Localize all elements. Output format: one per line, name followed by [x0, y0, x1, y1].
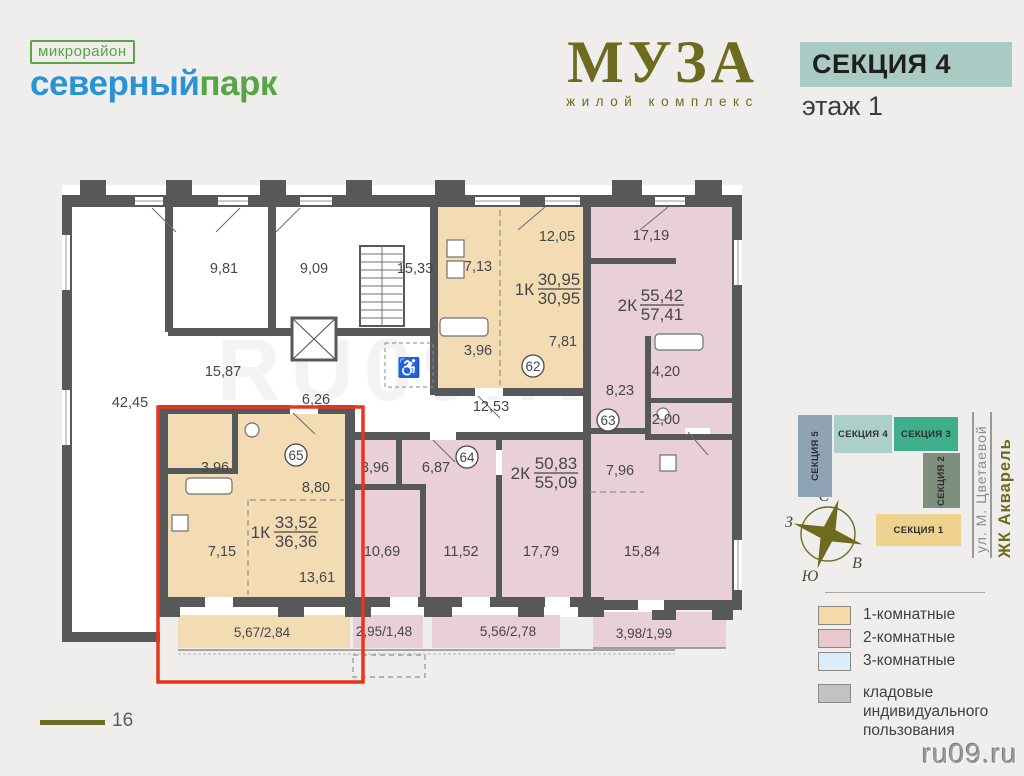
stairs [360, 246, 404, 326]
apartment-area-total: 50,83 [535, 454, 578, 473]
room-area-label: 12,05 [539, 229, 575, 245]
apartment-area-full: 55,09 [535, 473, 578, 492]
balcony-area-label: 3,98/1,99 [616, 626, 672, 641]
room-area-label: 7,96 [606, 463, 634, 479]
room-area-label: 15,33 [397, 261, 433, 277]
legend-item-storage: кладовые индивидуального пользования [818, 684, 1023, 740]
legend-label: 3-комнатные [863, 651, 1023, 670]
compass-east: В [852, 555, 862, 572]
legend-swatch-storage [818, 684, 851, 703]
legend-swatch-1k [818, 606, 851, 625]
apartment-area-total: 33,52 [275, 513, 318, 532]
room-area-label: 7,13 [464, 259, 492, 275]
legend-item-3k: 3-комнатные [818, 652, 1023, 671]
compass-south: Ю [801, 568, 819, 585]
bathtub-icon [186, 478, 232, 494]
apartment-63-area [588, 205, 733, 602]
apartment-type-label: 1К [515, 280, 534, 299]
minimap-section-3: СЕКЦИЯ 3 [894, 417, 958, 451]
room-area-label: 3,96 [361, 460, 389, 476]
apartment-area-full: 36,36 [275, 532, 318, 551]
apartment-number: 62 [525, 359, 540, 374]
street-name: ул. М. Цветаевой [973, 418, 989, 553]
bathtub-icon [440, 318, 488, 336]
legend-item-2k: 2-комнатные [818, 629, 1023, 648]
minimap-section-label: СЕКЦИЯ 4 [838, 429, 888, 440]
minimap-section-label: СЕКЦИЯ 3 [901, 429, 951, 440]
stove-icon [660, 455, 676, 471]
balcony-area-label: 5,56/2,78 [480, 624, 536, 639]
minimap-section-2: СЕКЦИЯ 2 [923, 453, 960, 508]
legend-label: 2-комнатные [863, 628, 1023, 647]
apartment-area-full: 30,95 [538, 289, 581, 308]
page: микрорайон северныйпарк МУЗА жилой компл… [0, 0, 1024, 776]
apartment-65-area [168, 410, 350, 597]
room-area-label: 4,20 [652, 364, 680, 380]
legend-divider [825, 592, 985, 593]
legend-label: кладовые индивидуального пользования [863, 683, 1023, 740]
neighbor-complex-name: ЖК Акварель [996, 418, 1015, 558]
minimap-section-1: СЕКЦИЯ 1 [876, 514, 961, 546]
scale-bar [40, 720, 105, 725]
room-area-label: 42,45 [112, 395, 148, 411]
legend-swatch-2k [818, 629, 851, 648]
room-area-label: 10,69 [364, 544, 400, 560]
room-area-label: 11,52 [443, 544, 478, 560]
room-area-label: 12,53 [473, 399, 509, 415]
room-area-label: 15,84 [624, 544, 660, 560]
room-area-label: 3,96 [201, 460, 229, 476]
apartment-area-total: 30,95 [538, 270, 581, 289]
room-area-label: 7,15 [208, 544, 236, 560]
apartment-type-label: 1К [251, 523, 270, 542]
minimap-section-label: СЕКЦИЯ 1 [894, 525, 944, 536]
apartment-number: 63 [600, 413, 615, 428]
bathtub-icon [655, 334, 703, 350]
room-area-label: 8,80 [302, 480, 330, 496]
wheelchair-icon: ♿ [397, 356, 421, 379]
legend-swatch-3k [818, 652, 851, 671]
room-area-label: 17,19 [633, 228, 669, 244]
apartment-number: 64 [459, 450, 475, 465]
apartment-number: 65 [288, 448, 303, 463]
room-area-label: 8,23 [606, 383, 634, 399]
apartment-area-total: 55,42 [641, 286, 684, 305]
room-area-label: 17,79 [523, 544, 559, 560]
room-area-label: 9,09 [300, 261, 328, 277]
minimap-section-4: СЕКЦИЯ 4 [834, 415, 892, 453]
legend-label: 1-комнатные [863, 605, 1023, 624]
minimap-section-label: СЕКЦИЯ 5 [810, 431, 821, 481]
room-area-label: 6,87 [422, 460, 450, 476]
balcony-rail [178, 648, 726, 654]
room-area-label: 15,87 [205, 364, 241, 380]
toilet-icon [245, 423, 259, 437]
elevator [292, 318, 336, 360]
compass-west: З [785, 514, 793, 531]
minimap-section-5: СЕКЦИЯ 5 [798, 415, 832, 497]
room-area-label: 7,81 [549, 334, 577, 350]
apartment-area-full: 57,41 [641, 305, 684, 324]
apartment-type-label: 2К [511, 464, 530, 483]
site-watermark: ru09.ru [922, 738, 1018, 770]
room-area-label: 3,96 [464, 343, 492, 359]
sink-icon [447, 261, 464, 278]
room-area-label: 2,00 [652, 412, 680, 428]
legend-item-1k: 1-комнатные [818, 606, 1023, 625]
balcony-area-label: 5,67/2,84 [234, 625, 291, 640]
apartment-type-label: 2К [618, 296, 637, 315]
minimap-section-label: СЕКЦИЯ 2 [936, 456, 947, 506]
stove-icon [172, 515, 188, 531]
stove-icon [447, 240, 464, 257]
street-line [990, 412, 992, 558]
room-area-label: 9,81 [210, 261, 238, 277]
floor-mark: 16 [112, 710, 133, 732]
compass: С Ю З В [783, 488, 873, 585]
room-area-label: 13,61 [299, 570, 335, 586]
